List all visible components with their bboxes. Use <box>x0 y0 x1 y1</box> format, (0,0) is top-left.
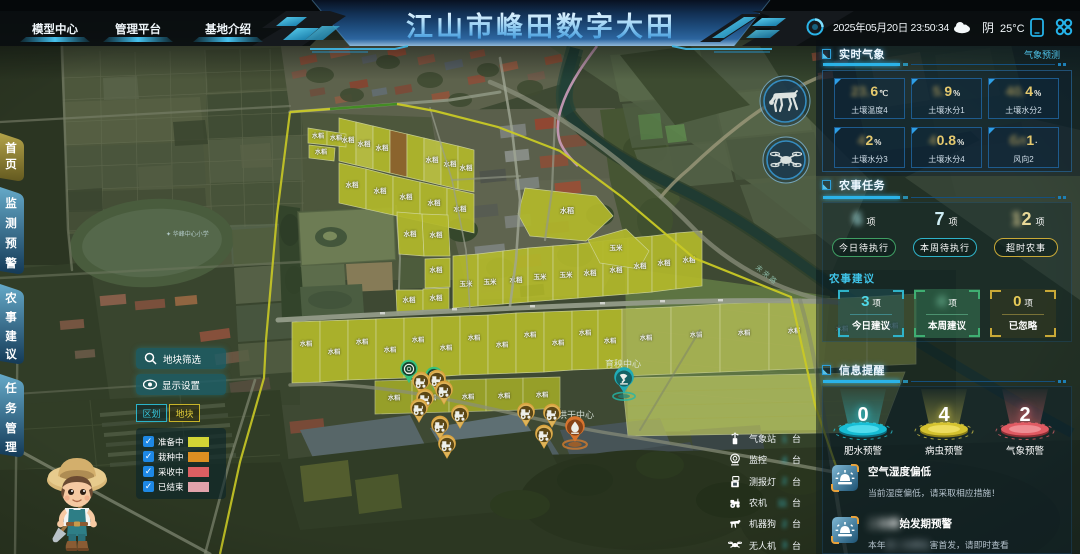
svg-text:0: 0 <box>857 404 868 426</box>
svg-text:2025年05月20日 23:50:34: 2025年05月20日 23:50:34 <box>833 21 949 34</box>
svg-text:基地介绍: 基地介绍 <box>204 22 251 36</box>
svg-text:管理平台: 管理平台 <box>115 22 161 36</box>
svg-text:江山市峰田数字大田: 江山市峰田数字大田 <box>406 11 676 42</box>
svg-text:模型中心: 模型中心 <box>32 22 78 36</box>
svg-text:预: 预 <box>5 236 17 250</box>
svg-text:任: 任 <box>4 381 17 395</box>
svg-text:理: 理 <box>5 441 17 454</box>
svg-text:议: 议 <box>5 347 17 361</box>
svg-text:管: 管 <box>5 421 17 435</box>
svg-text:肥水预警: 肥水预警 <box>844 445 883 457</box>
svg-text:气象预警: 气象预警 <box>1006 445 1045 457</box>
svg-text:测: 测 <box>5 216 17 230</box>
svg-text:页: 页 <box>5 158 17 171</box>
svg-text:警: 警 <box>4 256 17 270</box>
svg-text:25°C: 25°C <box>1000 23 1025 35</box>
svg-text:首: 首 <box>5 141 17 155</box>
svg-text:农: 农 <box>4 291 17 305</box>
svg-text:事: 事 <box>5 310 17 324</box>
svg-text:阴: 阴 <box>982 21 994 35</box>
svg-text:病虫预警: 病虫预警 <box>925 445 964 457</box>
svg-text:务: 务 <box>5 401 17 415</box>
svg-text:监: 监 <box>5 196 17 210</box>
svg-text:2: 2 <box>1019 404 1030 426</box>
svg-text:4: 4 <box>938 404 950 426</box>
svg-text:建: 建 <box>5 329 17 343</box>
